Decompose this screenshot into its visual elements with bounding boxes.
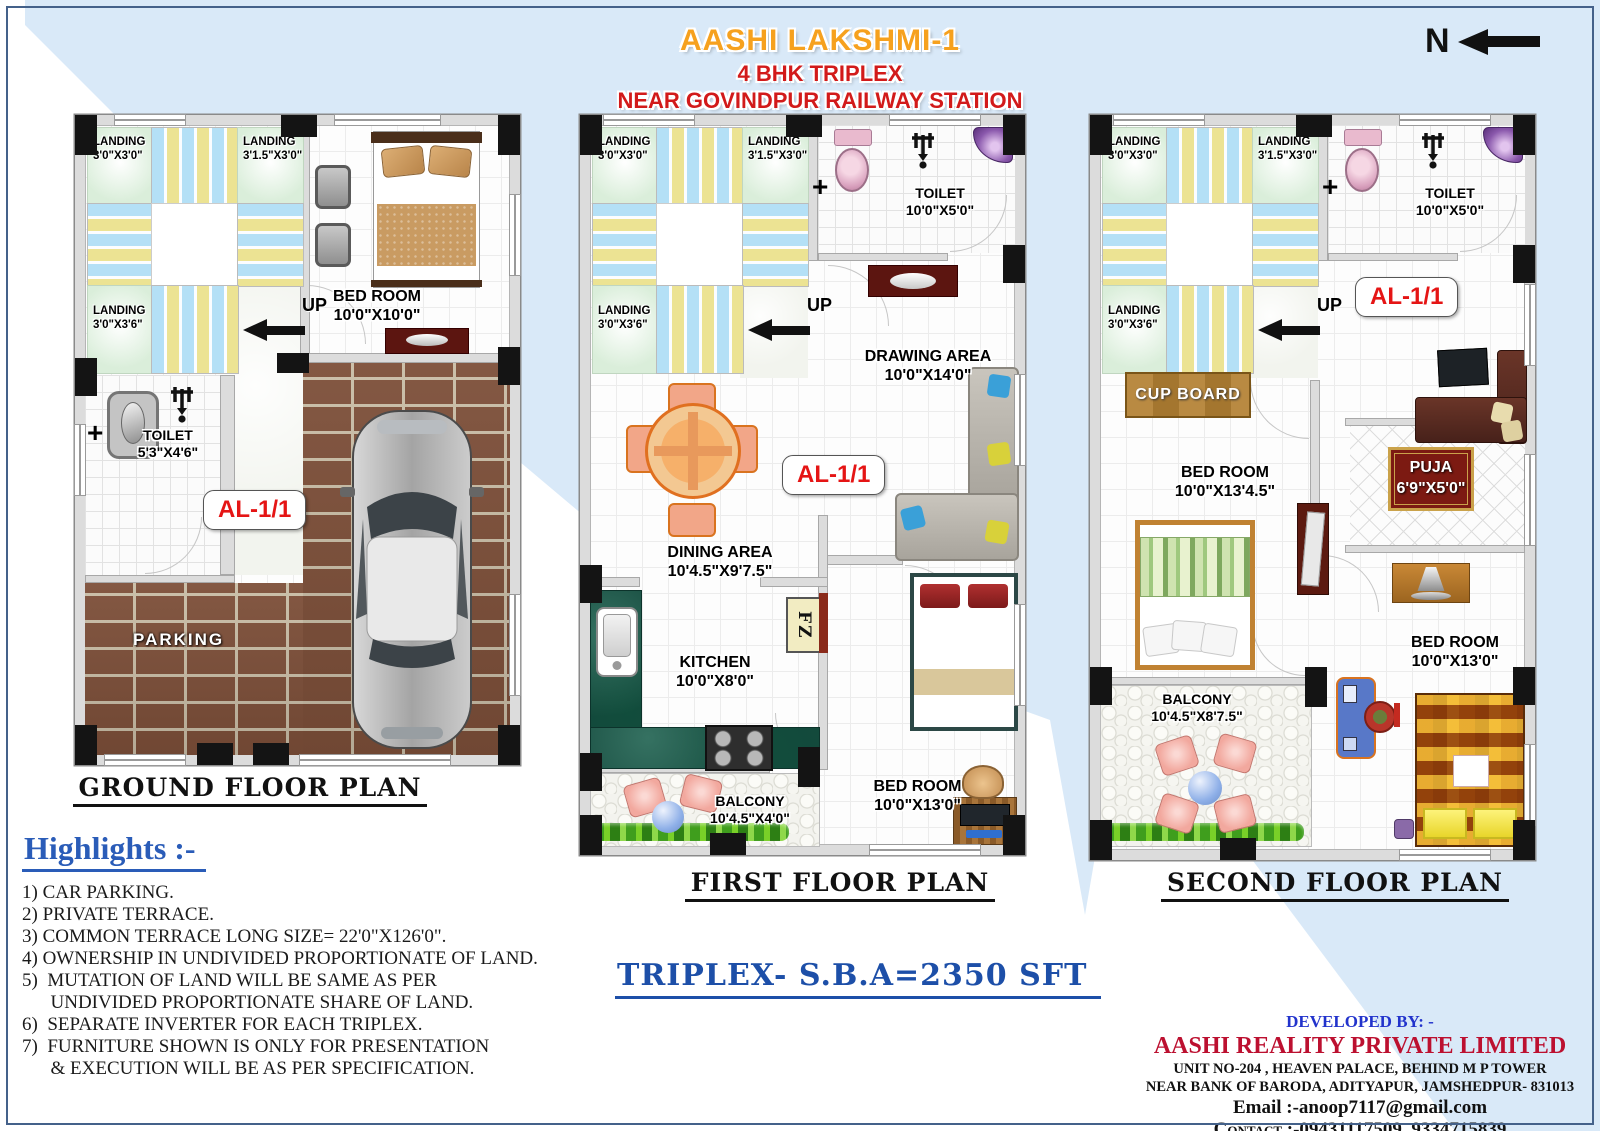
landing-dim: 3'0"X3'0" [93, 149, 150, 163]
cupboard-label: CUP BOARD [1135, 386, 1241, 404]
stair-well [151, 203, 239, 287]
landing-dim: 3'1.5"X3'0" [1258, 149, 1316, 163]
column-post [75, 358, 97, 396]
first-floor-plan: LANDING3'0"X3'0" LANDING3'1.5"X3'0" LAND… [580, 115, 1025, 855]
cushion [984, 519, 1009, 544]
highlight-item: 3) COMMON TERRACE LONG SIZE= 22'0"X126'0… [22, 926, 582, 948]
room-dim: 10'0"X13'0" [835, 796, 1000, 815]
stair-well [656, 203, 744, 287]
column-post [710, 833, 746, 855]
room-label-bedroom2: BED ROOM 10'0"X13'0" [1385, 633, 1525, 671]
highlight-item: 6) SEPARATE INVERTER FOR EACH TRIPLEX. [22, 1014, 582, 1036]
stair-steps [1166, 285, 1254, 374]
column-post [277, 353, 309, 373]
room-dim: 10'0"X13'4.5" [1140, 482, 1310, 501]
door-arc [1250, 380, 1309, 439]
room-name: BALCONY [1162, 691, 1231, 707]
wall [818, 555, 903, 565]
room-name: BED ROOM [1411, 634, 1499, 651]
window [1114, 115, 1204, 125]
stair-landing: LANDING3'1.5"X3'0" [742, 127, 809, 205]
car-icon [337, 407, 487, 752]
window [1015, 375, 1025, 465]
wardrobe-icon [1297, 503, 1329, 595]
window [115, 115, 185, 125]
highlights-heading: Highlights :- [22, 830, 206, 872]
column-post [498, 115, 520, 155]
pillow [920, 584, 960, 608]
column-post [1513, 115, 1535, 155]
column-post [1513, 245, 1535, 283]
column-post [1090, 820, 1112, 860]
stair-steps [1166, 127, 1254, 205]
room-dim: 10'0"X5'0" [1390, 202, 1510, 219]
up-label: UP [807, 295, 832, 316]
room-label-dining: DINING AREA 10'4.5"X9'7.5" [635, 543, 805, 581]
column-post [1003, 115, 1025, 155]
developer-address-2: NEAR BANK OF BARODA, ADITYAPUR, JAMSHEDP… [1140, 1079, 1580, 1096]
landing-name: LANDING [243, 136, 295, 148]
stair-landing: LANDING3'1.5"X3'0" [1252, 127, 1319, 205]
room-label-parking: PARKING [133, 630, 224, 650]
gate-opening [105, 755, 185, 765]
column-post [281, 115, 317, 137]
column-post [1090, 115, 1112, 155]
project-location: NEAR GOVINDPUR RAILWAY STATION [540, 87, 1100, 115]
toilet-bowl [835, 148, 869, 192]
puja-carpet: PUJA 6'9"X5'0" [1388, 447, 1474, 511]
developer-contact: Contact :-09431117509, 9334715839 [1140, 1119, 1580, 1131]
highlight-item: 1) CAR PARKING. [22, 882, 582, 904]
toilet-icon [1344, 129, 1380, 192]
stair-steps [151, 285, 239, 374]
room-dim: 10'4.5"X8'7.5" [1122, 708, 1272, 725]
window [870, 845, 980, 855]
column-post [1296, 115, 1332, 137]
keyboard [966, 830, 1002, 838]
room-dim: 10'0"X5'0" [880, 202, 1000, 219]
room-name: KITCHEN [679, 654, 750, 671]
bed-icon [373, 131, 480, 288]
bed-footboard [371, 280, 482, 287]
unit-badge: AL-1/1 [782, 455, 885, 495]
unit-badge: AL-1/1 [1355, 277, 1458, 317]
window [1400, 850, 1490, 860]
blanket [914, 669, 1014, 695]
column-post [1003, 815, 1025, 855]
sba-summary: TRIPLEX- S.B.A=2350 SFT [615, 958, 1101, 999]
bell-shelf [1392, 563, 1470, 603]
arrow-shaft [265, 326, 305, 335]
landing-dim: 3'0"X3'0" [598, 149, 655, 163]
window [510, 595, 520, 695]
window [75, 425, 85, 495]
column-post [197, 743, 233, 765]
project-subtitle: 4 BHK TRIPLEX [540, 60, 1100, 88]
stair-steps [592, 203, 658, 287]
plan-title-text: SECOND FLOOR PLAN [1161, 868, 1509, 902]
screen [1343, 685, 1357, 703]
pillow [1423, 808, 1467, 839]
pillow [1473, 808, 1517, 839]
arrow-shaft [1488, 36, 1540, 47]
door-marker: + [812, 177, 828, 197]
landing-label: LANDING3'0"X3'6" [1103, 286, 1167, 333]
landing-label: LANDING3'0"X3'6" [88, 286, 152, 333]
room-label-balcony: BALCONY 10'4.5"X8'7.5" [1122, 691, 1272, 725]
stair-steps [87, 203, 153, 287]
freezer-icon: FZ [786, 597, 822, 653]
project-title: AASHI LAKSHMI-1 [540, 22, 1100, 60]
stair-steps [1252, 203, 1319, 287]
sink-basin [603, 614, 631, 657]
room-name: BED ROOM [874, 778, 962, 795]
wall [1345, 545, 1525, 553]
toilet-tank [834, 129, 872, 146]
highlight-item: UNDIVIDED PROPORTIONATE SHARE OF LAND. [22, 992, 582, 1014]
column-post [1003, 245, 1025, 283]
room-label-balcony: BALCONY 10'4.5"X4'0" [685, 793, 815, 827]
window [604, 115, 694, 125]
room-dim: 10'0"X8'0" [630, 672, 800, 691]
column-post [580, 565, 602, 603]
landing-label: LANDING3'0"X3'0" [88, 128, 152, 164]
room-dim: 10'4.5"X9'7.5" [635, 562, 805, 581]
north-label: N [1425, 22, 1450, 61]
column-post [498, 725, 520, 765]
room-name: BALCONY [715, 793, 784, 809]
developer-address-1: UNIT NO-204 , HEAVEN PALACE, BEHIND M P … [1140, 1061, 1580, 1078]
gate-opening [300, 755, 450, 765]
window [335, 115, 440, 125]
up-arrow: UP [748, 317, 834, 347]
planter-strip [1104, 823, 1304, 841]
bell-icon [1415, 567, 1447, 591]
floor-plan-poster: AASHI LAKSHMI-1 4 BHK TRIPLEX NEAR GOVIN… [0, 0, 1600, 1131]
stair-steps [742, 203, 809, 287]
room-name: PUJA [1410, 458, 1453, 479]
landing-dim: 3'0"X3'6" [1108, 318, 1165, 332]
landing-dim: 3'1.5"X3'0" [748, 149, 806, 163]
room-name: BED ROOM [1181, 464, 1269, 481]
window [510, 195, 520, 275]
bell-base [1411, 592, 1451, 600]
room-label-toilet: TOILET 10'0"X5'0" [1390, 185, 1510, 219]
shower-icon [167, 385, 197, 425]
window [1400, 115, 1490, 125]
wall [300, 353, 510, 363]
room-label-toilet: TOILET 5'3"X4'6" [113, 427, 223, 461]
room-label-bedroom: BED ROOM 10'0"X13'0" [835, 777, 1000, 815]
window [1525, 285, 1535, 365]
bed-icon [1135, 520, 1255, 670]
bed-headboard [371, 132, 482, 143]
wall [1100, 677, 1315, 685]
arrow-head [748, 319, 772, 341]
up-label: UP [1317, 295, 1342, 316]
landing-name: LANDING [1108, 305, 1160, 317]
compass: N [1425, 22, 1540, 61]
plan-title-text: FIRST FLOOR PLAN [685, 868, 996, 902]
pillow [381, 145, 426, 178]
basin [890, 273, 936, 289]
room-label-toilet: TOILET 10'0"X5'0" [880, 185, 1000, 219]
stair-steps [656, 285, 744, 374]
vanity-basin-icon [868, 265, 958, 297]
door-marker: + [87, 423, 103, 443]
stair-landing: LANDING3'1.5"X3'0" [237, 127, 304, 205]
tv-icon [1437, 348, 1489, 388]
room-dim: 10'0"X13'0" [1385, 652, 1525, 671]
cupboard-icon: CUP BOARD [1125, 372, 1251, 418]
room-name: DINING AREA [667, 544, 772, 561]
cushion [1500, 419, 1523, 442]
column-post [498, 347, 520, 385]
room-label-kitchen: KITCHEN 10'0"X8'0" [630, 653, 800, 691]
landing-dim: 3'1.5"X3'0" [243, 149, 301, 163]
parking-floor [85, 583, 303, 755]
pillow [1200, 623, 1238, 658]
wall [85, 575, 235, 583]
dining-table-icon [645, 403, 741, 499]
landing-name: LANDING [598, 305, 650, 317]
column-post [1513, 667, 1535, 705]
toilet-bowl [1345, 148, 1379, 192]
balcony-table-icon [652, 801, 684, 833]
dining-chair-icon [668, 503, 716, 537]
chair-arm [1394, 703, 1400, 727]
unit-badge: AL-1/1 [203, 490, 306, 530]
pillow [428, 145, 473, 178]
door-arc [1322, 555, 1379, 612]
landing-name: LANDING [748, 136, 800, 148]
door-marker: + [1322, 177, 1338, 197]
fridge-side [819, 593, 828, 653]
landing-dim: 3'0"X3'6" [598, 318, 655, 332]
toilet-icon [834, 129, 870, 192]
window [890, 115, 980, 125]
wardrobe-door [1301, 511, 1325, 586]
room-name: BED ROOM [333, 288, 421, 305]
landing-dim: 3'0"X3'6" [93, 318, 150, 332]
arrow-shaft [1280, 326, 1320, 335]
window [1525, 745, 1535, 825]
column-post [798, 747, 820, 787]
column-post [1220, 838, 1256, 860]
balcony-table-icon [1188, 771, 1222, 805]
landing-label: LANDING3'0"X3'6" [593, 286, 657, 333]
chair-icon [315, 165, 351, 209]
landing-label: LANDING3'0"X3'0" [593, 128, 657, 164]
chair-icon [315, 223, 351, 267]
room-dim: 10'0"X14'0" [848, 366, 1008, 385]
column-post [580, 815, 602, 855]
second-floor-plan: LANDING3'0"X3'0" LANDING3'1.5"X3'0" LAND… [1090, 115, 1535, 860]
developer-email: Email :-anoop7117@gmail.com [1140, 1097, 1580, 1119]
stair-landing: LANDING3'0"X3'6" [1102, 285, 1168, 374]
blanket [1140, 537, 1250, 597]
arrow-head [1458, 29, 1488, 55]
landing-name: LANDING [93, 305, 145, 317]
header: AASHI LAKSHMI-1 4 BHK TRIPLEX NEAR GOVIN… [540, 22, 1100, 115]
column-post [1090, 667, 1112, 705]
arrow-head [243, 319, 267, 341]
cushion [987, 442, 1012, 467]
window [1015, 605, 1025, 705]
plan-title-text: GROUND FLOOR PLAN [73, 773, 428, 807]
column-post [580, 753, 602, 791]
bedside-table [1394, 819, 1414, 839]
room-label-bedroom1: BED ROOM 10'0"X13'4.5" [1140, 463, 1310, 501]
table-cross [654, 446, 732, 456]
up-arrow: UP [1258, 317, 1344, 347]
stair-steps [151, 127, 239, 205]
freezer-label: FZ [794, 611, 814, 639]
pillow [968, 584, 1008, 608]
column-post [580, 115, 602, 155]
room-dim: 5'3"X4'6" [113, 444, 223, 461]
column-post [75, 115, 97, 155]
landing-name: LANDING [598, 136, 650, 148]
arrow-shaft [770, 326, 810, 335]
wall [220, 375, 235, 575]
bed-icon [1415, 693, 1525, 847]
blanket [377, 204, 476, 266]
landing-dim: 3'0"X3'0" [1108, 149, 1165, 163]
landing-name: LANDING [1258, 136, 1310, 148]
dresser-plate [406, 334, 448, 346]
column-post [1513, 820, 1535, 860]
dresser-icon [385, 328, 469, 354]
room-name: TOILET [143, 427, 193, 443]
bed-icon [910, 573, 1018, 731]
column-post [1305, 667, 1327, 707]
sink-drain [613, 661, 622, 670]
stair-steps [1102, 203, 1168, 287]
highlight-item: 4) OWNERSHIP IN UNDIVIDED PROPORTIONATE … [22, 948, 582, 970]
shower-icon [1418, 131, 1448, 171]
toilet-tank [1344, 129, 1382, 146]
developer-block: DEVELOPED BY: - AASHI REALITY PRIVATE LI… [1140, 1012, 1580, 1131]
developer-company: AASHI REALITY PRIVATE LIMITED [1140, 1033, 1580, 1060]
room-name: DRAWING AREA [865, 348, 992, 365]
landing-name: LANDING [1108, 136, 1160, 148]
landing-name: LANDING [93, 136, 145, 148]
room-dim: 6'9"X5'0" [1396, 479, 1465, 500]
window [1525, 455, 1535, 545]
landing-label: LANDING3'0"X3'0" [1103, 128, 1167, 164]
wall [818, 253, 948, 261]
highlights-section: Highlights :- 1) CAR PARKING. 2) PRIVATE… [22, 830, 582, 1080]
desk-chair-icon [1364, 701, 1396, 733]
highlight-item: 2) PRIVATE TERRACE. [22, 904, 582, 926]
first-floor-title: FIRST FLOOR PLAN [650, 868, 1030, 902]
screen [1343, 737, 1357, 751]
highlight-item: 7) FURNITURE SHOWN IS ONLY FOR PRESENTAT… [22, 1036, 582, 1058]
highlight-item: 5) MUTATION OF LAND WILL BE SAME AS PER [22, 970, 582, 992]
room-dim: 10'0"X10'0" [307, 306, 447, 325]
wall [1328, 253, 1458, 261]
ground-floor-plan: LANDING3'0"X3'0" LANDING3'1.5"X3'0" LAND… [75, 115, 520, 765]
stove-icon [705, 725, 773, 771]
room-label-bedroom: BED ROOM 10'0"X10'0" [307, 287, 447, 325]
north-arrow-icon [1458, 29, 1540, 55]
shower-icon [908, 131, 938, 171]
arrow-head [1258, 319, 1282, 341]
second-floor-title: SECOND FLOOR PLAN [1140, 868, 1530, 902]
stair-well [1166, 203, 1254, 287]
room-dim: 10'4.5"X4'0" [685, 810, 815, 827]
stair-steps [237, 203, 304, 287]
stair-landing: LANDING3'0"X3'6" [592, 285, 658, 374]
stair-steps [656, 127, 744, 205]
column-post [786, 115, 822, 137]
room-name: TOILET [915, 185, 965, 201]
bed-center [1453, 755, 1489, 787]
room-label-drawing: DRAWING AREA 10'0"X14'0" [848, 347, 1008, 385]
sba-text: TRIPLEX- S.B.A=2350 SFT [615, 958, 1101, 999]
room-name: TOILET [1425, 185, 1475, 201]
door-arc [1252, 623, 1305, 676]
column-post [75, 725, 97, 765]
ground-floor-title: GROUND FLOOR PLAN [40, 773, 460, 807]
column-post [253, 743, 289, 765]
highlight-item: & EXECUTION WILL BE AS PER SPECIFICATION… [22, 1058, 582, 1080]
developed-by-label: DEVELOPED BY: - [1140, 1012, 1580, 1032]
